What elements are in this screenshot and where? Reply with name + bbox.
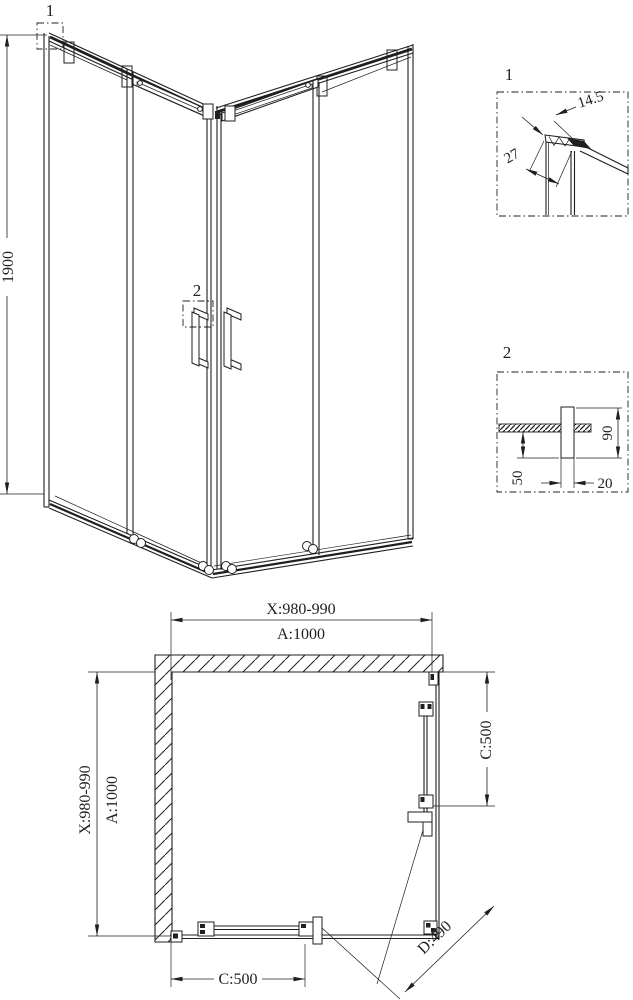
callout-1-label: 1 bbox=[46, 1, 55, 20]
plan-top-a-label: A:1000 bbox=[277, 626, 325, 643]
dim-50: 50 bbox=[510, 432, 559, 486]
detail-2-section: 2 90 50 20 bbox=[497, 343, 628, 492]
iso-view: 1900 bbox=[0, 1, 413, 578]
dim-14-5: 14.5 bbox=[522, 89, 606, 139]
panel-divider-left bbox=[127, 69, 133, 537]
shower-enclosure-drawing: 1900 bbox=[0, 0, 633, 1000]
plan-bottom-c-dimension: C:500 bbox=[171, 942, 305, 988]
glass-edge bbox=[546, 142, 575, 215]
dim-50-label: 50 bbox=[510, 471, 526, 486]
plan-view: X:980-990 A:1000 X:980-990 A:1000 bbox=[77, 601, 495, 999]
dim-27: 27 bbox=[502, 141, 572, 187]
plan-left-a-label: A:1000 bbox=[104, 776, 121, 824]
plan-right-c-label: C:500 bbox=[478, 720, 495, 759]
detail-1-section: 1 14.5 27 bbox=[497, 65, 628, 216]
panel-divider-right bbox=[313, 80, 319, 555]
dim-90: 90 bbox=[576, 408, 622, 458]
plan-bottom-panels bbox=[170, 917, 439, 944]
door-track-right bbox=[222, 79, 318, 121]
rail-diagonal bbox=[580, 146, 628, 174]
glass-section-hatched bbox=[499, 424, 591, 432]
dim-20-label: 20 bbox=[598, 476, 613, 492]
technical-drawing-page: 1900 bbox=[0, 0, 633, 1000]
dim-27-label: 27 bbox=[502, 146, 523, 168]
height-dim-label: 1900 bbox=[0, 251, 17, 283]
plan-right-c-dimension: C:500 bbox=[433, 672, 495, 806]
detail-2-label: 2 bbox=[503, 343, 512, 362]
left-wall-profile bbox=[44, 33, 49, 507]
height-dimension-1900: 1900 bbox=[0, 35, 47, 494]
callout-2-label: 2 bbox=[193, 281, 202, 300]
dim-90-label: 90 bbox=[600, 426, 616, 441]
door-track-left bbox=[132, 76, 211, 119]
door-handle-left bbox=[192, 308, 208, 368]
plan-top-x-label: X:980-990 bbox=[266, 601, 335, 618]
plan-bottom-door-handle bbox=[313, 917, 322, 944]
door-handle-right bbox=[224, 308, 241, 370]
dim-20: 20 bbox=[541, 458, 613, 492]
plan-diagonal-dimension: D:490 bbox=[322, 830, 494, 999]
detail-1-label: 1 bbox=[505, 65, 514, 84]
plan-right-door-handle bbox=[408, 812, 432, 822]
handle-section bbox=[561, 407, 574, 458]
plan-left-x-label: X:980-990 bbox=[77, 765, 94, 834]
walls-hatched bbox=[155, 655, 443, 942]
plan-bottom-c-label: C:500 bbox=[218, 971, 257, 988]
plan-right-panels bbox=[408, 672, 439, 939]
right-wall-profile bbox=[408, 44, 413, 539]
